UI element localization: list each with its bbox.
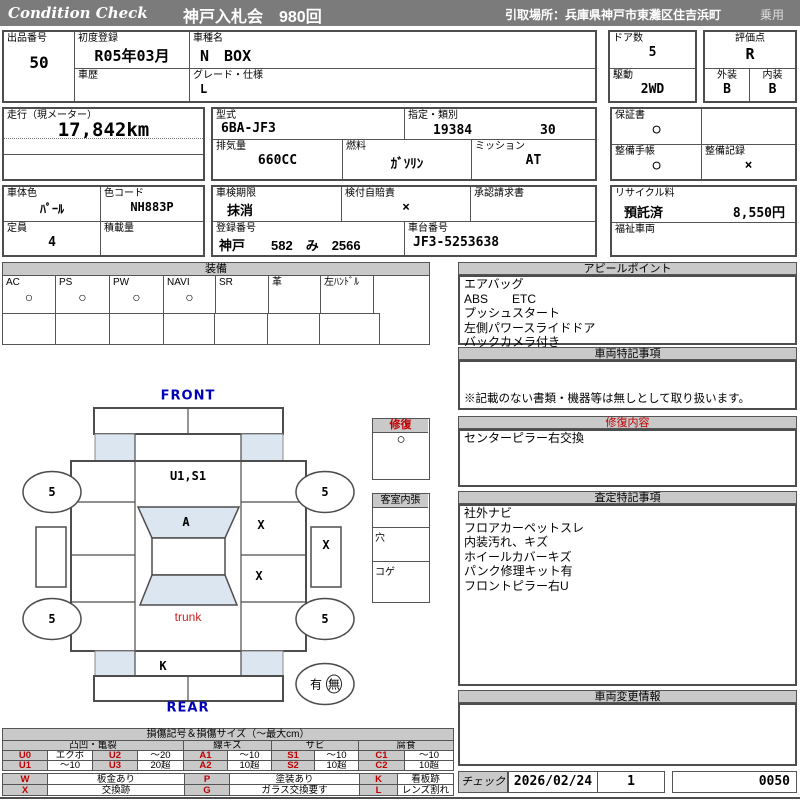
spare-none-label: 無 bbox=[326, 675, 342, 694]
displacement-value: 660CC bbox=[213, 153, 342, 168]
recycle-cell: リサイクル料 預託済 8,550円 bbox=[612, 187, 795, 223]
rear-cowl-left bbox=[95, 651, 135, 676]
fuel-cell: 燃料 ｶﾞｿﾘﾝ bbox=[343, 140, 472, 179]
legend-group-scratch: 線キズ bbox=[184, 741, 272, 751]
equipment-label: 左ﾊﾝﾄﾞﾙ bbox=[321, 276, 373, 289]
class-label: 指定・類別 bbox=[405, 109, 595, 122]
first-registration-value: R05年03月 bbox=[75, 45, 189, 66]
exterior-grade-value: B bbox=[705, 82, 749, 97]
equipment-label: NAVI bbox=[164, 276, 215, 289]
equipment-cell-lhd: 左ﾊﾝﾄﾞﾙ bbox=[321, 276, 374, 313]
vehicle-notes-body: ※記載のない書類・機器等は無しとして取り扱います。 bbox=[458, 360, 797, 410]
transmission-label: ミッション bbox=[472, 140, 595, 153]
damage-legend-table: 損傷記号＆損傷サイズ（〜最大cm） 凸凹・亀裂 線キズ サビ 腐食 U0 エクボ… bbox=[2, 728, 454, 771]
equipment-cell-navi: NAVI○ bbox=[164, 276, 216, 313]
drive-value: 2WD bbox=[610, 82, 695, 97]
legend-code: S1 bbox=[272, 751, 315, 761]
capacity-cell: 定員 4 bbox=[4, 222, 101, 255]
assessment-line: フロアカーペットスレ bbox=[460, 521, 795, 536]
vin-cell: 車台番号 JF3-5253638 bbox=[405, 222, 595, 255]
warranty-label: 保証書 bbox=[612, 109, 701, 122]
recycle-label: リサイクル料 bbox=[612, 187, 795, 200]
vehicle-info-table: 出品番号 50 初度登録 R05年03月 車歴 車種名 N BOX グレード・仕… bbox=[2, 30, 597, 103]
assessment-line: 社外ナビ bbox=[460, 506, 795, 521]
approval-label: 承認請求書 bbox=[471, 187, 595, 200]
equipment-cell-pw: PW○ bbox=[110, 276, 164, 313]
auction-condition-sheet: Condition Check 神戸入札会 980回 引取場所：兵庫県神戸市東灘… bbox=[0, 0, 800, 800]
pickup-location: 引取場所：兵庫県神戸市東灘区住吉浜町 bbox=[505, 6, 721, 23]
legend-size: 10超 bbox=[228, 761, 272, 771]
code-row-2: X 交換跡 G ガラス交換要す L レンズ割れ bbox=[3, 785, 453, 796]
rear-cowl-right bbox=[241, 651, 283, 676]
approval-cell: 承認請求書 bbox=[471, 187, 595, 222]
class-value-2: 30 bbox=[540, 123, 556, 138]
score-label: 評価点 bbox=[705, 32, 795, 45]
assessment-title: 査定特記事項 bbox=[458, 491, 797, 504]
legend-desc: 板金あり bbox=[48, 774, 185, 785]
lot-number-value: 50 bbox=[4, 53, 74, 72]
legend-desc: 塗装あり bbox=[230, 774, 360, 785]
recycle-status: 預託済 bbox=[624, 202, 663, 221]
equipment-cell-sr: SR bbox=[216, 276, 269, 313]
repair-content-line: センターピラー右交換 bbox=[460, 431, 795, 446]
wheel-size-fr: 5 bbox=[321, 485, 328, 499]
check-date: 2026/02/24 bbox=[509, 772, 598, 792]
legend-code: U2 bbox=[93, 751, 138, 761]
equipment-mark: ○ bbox=[3, 289, 55, 305]
interior-damage-title: 客室内張 bbox=[373, 494, 428, 508]
plate-label: 登録番号 bbox=[213, 222, 404, 235]
displacement-cell: 排気量 660CC bbox=[213, 140, 343, 179]
documents-box: 保証書 ○ 整備手帳 ○ 整備記録 × bbox=[610, 107, 797, 181]
color-capacity-box: 車体色 ﾊﾟｰﾙ 色コード NH883P 定員 4 積載量 bbox=[2, 185, 205, 257]
lot-number-label: 出品番号 bbox=[4, 32, 74, 45]
legend-code: X bbox=[3, 785, 48, 796]
legend-code: U3 bbox=[93, 761, 138, 771]
color-code-value: NH883P bbox=[101, 200, 203, 214]
bottom-rule bbox=[0, 797, 800, 799]
legend-group-row: 凸凹・亀裂 線キズ サビ 腐食 bbox=[3, 741, 453, 751]
capacity-label: 定員 bbox=[4, 222, 100, 235]
change-info-title: 車両変更情報 bbox=[458, 690, 797, 703]
score-cell: 評価点 R bbox=[705, 32, 795, 69]
mileage-box: 走行（現メーター） 17,842km bbox=[2, 107, 205, 181]
check-label-cell: チェック bbox=[458, 771, 508, 793]
brand-logo: Condition Check bbox=[8, 4, 148, 22]
left-side-panel bbox=[36, 527, 66, 587]
legend-code: W bbox=[3, 774, 48, 785]
equipment-cell-extra bbox=[374, 276, 428, 313]
grade-cell: グレード・仕様 L bbox=[190, 69, 595, 101]
transmission-cell: ミッション AT bbox=[472, 140, 595, 179]
spare-has-label: 有 bbox=[310, 676, 322, 693]
vehicle-notes-note: ※記載のない書類・機器等は無しとして取り扱います。 bbox=[464, 390, 750, 406]
x-mark-lower: X bbox=[255, 569, 262, 583]
warranty-value: ○ bbox=[612, 122, 701, 137]
rear-window bbox=[140, 575, 237, 605]
service-record-label: 整備記録 bbox=[702, 145, 795, 158]
transmission-value: AT bbox=[472, 153, 595, 168]
warranty-cell: 保証書 ○ bbox=[612, 109, 702, 145]
damage-code-table: W 板金あり P 塗装あり K 看板跡 X 交換跡 G ガラス交換要す L レン… bbox=[2, 773, 454, 796]
body-color-value: ﾊﾟｰﾙ bbox=[4, 200, 100, 217]
check-date-box: 2026/02/24 1 bbox=[508, 771, 665, 793]
equipment-mark: ○ bbox=[56, 289, 109, 305]
insurance-label: 検付自賠責 bbox=[342, 187, 470, 200]
recycle-fee: 8,550円 bbox=[733, 202, 785, 221]
service-book-value: ○ bbox=[612, 158, 701, 173]
legend-group-rust: サビ bbox=[272, 741, 359, 751]
legend-code: C2 bbox=[359, 761, 405, 771]
wheel-size-rr: 5 bbox=[321, 612, 328, 626]
equipment-label: 革 bbox=[269, 276, 320, 289]
legend-desc: ガラス交換要す bbox=[230, 785, 360, 796]
doors-drive-box: ドア数 5 駆動 2WD bbox=[608, 30, 697, 103]
equipment-cell-ps: PS○ bbox=[56, 276, 110, 313]
front-label: FRONT bbox=[161, 389, 216, 404]
displacement-label: 排気量 bbox=[213, 140, 342, 153]
repair-flag-box: 修復 ○ bbox=[372, 418, 430, 480]
roof bbox=[152, 538, 225, 575]
rear-label: REAR bbox=[167, 701, 210, 716]
inspection-cell: 車検期限 抹消 bbox=[213, 187, 342, 222]
appeal-body: エアバッグ ABS ETC プッシュスタート 左側パワースライドドア バックカメ… bbox=[458, 275, 797, 345]
repair-content-body: センターピラー右交換 bbox=[458, 429, 797, 487]
legend-title: 損傷記号＆損傷サイズ（〜最大cm） bbox=[3, 729, 453, 741]
assessment-line: ホイールカバーキズ bbox=[460, 550, 795, 565]
car-outline-drawing bbox=[20, 390, 370, 722]
body-color-label: 車体色 bbox=[4, 187, 100, 200]
legend-code: U0 bbox=[3, 751, 48, 761]
equipment-cell-ac: AC○ bbox=[3, 276, 56, 313]
front-cowl-right bbox=[241, 434, 283, 461]
welfare-label: 福祉車両 bbox=[612, 223, 795, 236]
appeal-line: プッシュスタート bbox=[460, 306, 795, 321]
legend-code: A1 bbox=[184, 751, 228, 761]
x-mark-upper: X bbox=[257, 518, 264, 532]
vin-label: 車台番号 bbox=[405, 222, 595, 235]
equipment-title: 装備 bbox=[3, 263, 429, 276]
equipment-label: SR bbox=[216, 276, 268, 289]
x-mark-side: X bbox=[322, 538, 329, 552]
first-registration-label: 初度登録 bbox=[75, 32, 189, 45]
legend-size: 20超 bbox=[138, 761, 184, 771]
doors-value: 5 bbox=[610, 45, 695, 60]
title-bar: Condition Check 神戸入札会 980回 引取場所：兵庫県神戸市東灘… bbox=[0, 0, 800, 26]
interior-grade-value: B bbox=[750, 82, 795, 97]
repair-flag-title: 修復 bbox=[373, 419, 428, 433]
interior-damage-box: 客室内張 ヤブレ 穴 コゲ bbox=[372, 493, 430, 603]
check-count: 1 bbox=[598, 772, 664, 792]
legend-desc: 看板跡 bbox=[398, 774, 453, 785]
plate-cell: 登録番号 神戸 582 み 2566 bbox=[213, 222, 405, 255]
mileage-cell: 走行（現メーター） 17,842km bbox=[4, 109, 203, 139]
drive-cell: 駆動 2WD bbox=[610, 69, 695, 101]
change-info-body bbox=[458, 703, 797, 766]
legend-desc: 交換跡 bbox=[48, 785, 185, 796]
equipment-label: AC bbox=[3, 276, 55, 289]
equipment-table: 装備 AC○ PS○ PW○ NAVI○ SR 革 左ﾊﾝﾄﾞﾙ bbox=[2, 262, 430, 345]
legend-size: 10超 bbox=[315, 761, 359, 771]
legend-code: K bbox=[360, 774, 398, 785]
legend-group-dents: 凸凹・亀裂 bbox=[3, 741, 184, 751]
appeal-line: エアバッグ bbox=[460, 277, 795, 292]
assessment-line: パンク修理キット有 bbox=[460, 564, 795, 579]
equipment-row-1: AC○ PS○ PW○ NAVI○ SR 革 左ﾊﾝﾄﾞﾙ bbox=[3, 276, 429, 313]
recycle-welfare-box: リサイクル料 預託済 8,550円 福祉車両 bbox=[610, 185, 797, 257]
history-cell: 車歴 bbox=[75, 69, 190, 101]
hood-mark: U1,S1 bbox=[170, 469, 206, 483]
load-cell: 積載量 bbox=[101, 222, 203, 255]
capacity-value: 4 bbox=[4, 235, 100, 250]
interior-grade-label: 内装 bbox=[750, 69, 795, 82]
legend-code: L bbox=[360, 785, 398, 796]
code-row-1: W 板金あり P 塗装あり K 看板跡 bbox=[3, 774, 453, 785]
warranty-empty-cell bbox=[702, 109, 795, 145]
history-label: 車歴 bbox=[75, 69, 189, 82]
plate-value: 神戸 582 み 2566 bbox=[213, 235, 404, 254]
legend-size-row-1: U0 エクボ U2 〜20 A1 〜10 S1 〜10 C1 〜10 bbox=[3, 751, 453, 761]
equipment-mark: ○ bbox=[164, 289, 215, 305]
check-number-box: 0050 bbox=[672, 771, 797, 793]
assessment-body: 社外ナビ フロアカーペットスレ 内装汚れ、キズ ホイールカバーキズ パンク修理キ… bbox=[458, 504, 797, 686]
rear-mark: K bbox=[159, 659, 166, 673]
color-code-label: 色コード bbox=[101, 187, 203, 200]
equipment-mark: ○ bbox=[110, 289, 163, 305]
lot-number-cell: 出品番号 50 bbox=[4, 32, 75, 101]
inspection-value: 抹消 bbox=[213, 200, 341, 219]
vehicle-notes-title: 車両特記事項 bbox=[458, 347, 797, 360]
vehicle-class: 乗用 bbox=[760, 6, 784, 23]
repair-flag-mark: ○ bbox=[373, 431, 429, 448]
equipment-label bbox=[374, 276, 428, 277]
service-record-value: × bbox=[702, 158, 795, 173]
equipment-label: PW bbox=[110, 276, 163, 289]
grade-value: L bbox=[190, 82, 595, 96]
legend-size: 〜10 bbox=[48, 761, 93, 771]
legend-code: S2 bbox=[272, 761, 315, 771]
damage-diagram: FRONT U1,S1 A X X X trunk K REAR 5 5 5 5… bbox=[20, 390, 370, 722]
repair-content-title: 修復内容 bbox=[458, 416, 797, 429]
fuel-value: ｶﾞｿﾘﾝ bbox=[343, 153, 471, 172]
model-name-label: 車種名 bbox=[190, 32, 595, 45]
assessment-line: フロントピラー右U bbox=[460, 579, 795, 594]
legend-desc: レンズ割れ bbox=[398, 785, 453, 796]
registration-box: 車検期限 抹消 検付自賠責 × 承認請求書 登録番号 神戸 582 み 2566… bbox=[211, 185, 597, 257]
legend-size: 〜10 bbox=[228, 751, 272, 761]
wheel-size-rl: 5 bbox=[48, 612, 55, 626]
insurance-cell: 検付自賠責 × bbox=[342, 187, 471, 222]
right-side-panel bbox=[311, 527, 341, 587]
drive-label: 駆動 bbox=[610, 69, 695, 82]
assessment-line: 内装汚れ、キズ bbox=[460, 535, 795, 550]
windshield-mark: A bbox=[182, 515, 189, 529]
equipment-label: PS bbox=[56, 276, 109, 289]
score-value: R bbox=[705, 45, 795, 63]
service-book-label: 整備手帳 bbox=[612, 145, 701, 158]
mileage-value: 17,842km bbox=[4, 122, 203, 139]
legend-size: 〜10 bbox=[405, 751, 453, 761]
interior-row-hole: 穴 bbox=[373, 528, 429, 562]
wheel-size-fl: 5 bbox=[48, 485, 55, 499]
equipment-row-2 bbox=[3, 313, 380, 345]
legend-size: 10超 bbox=[405, 761, 453, 771]
insurance-value: × bbox=[342, 200, 470, 215]
score-box: 評価点 R 外装 B 内装 B bbox=[703, 30, 797, 103]
fuel-label: 燃料 bbox=[343, 140, 471, 153]
legend-size: 〜20 bbox=[138, 751, 184, 761]
appeal-line: ABS ETC bbox=[460, 292, 795, 307]
legend-code: P bbox=[185, 774, 230, 785]
equipment-cell-leather: 革 bbox=[269, 276, 321, 313]
legend-code: A2 bbox=[184, 761, 228, 771]
class-value-1: 19384 bbox=[433, 123, 472, 138]
spec-box: 型式 6BA-JF3 指定・類別 19384 30 排気量 660CC 燃料 ｶ… bbox=[211, 107, 597, 181]
model-code-value: 6BA-JF3 bbox=[213, 122, 404, 136]
legend-size: 〜10 bbox=[315, 751, 359, 761]
trunk-label: trunk bbox=[175, 610, 202, 624]
grade-label: グレード・仕様 bbox=[190, 69, 595, 82]
model-code-cell: 型式 6BA-JF3 bbox=[213, 109, 405, 140]
front-cowl-left bbox=[95, 434, 135, 461]
service-book-cell: 整備手帳 ○ bbox=[612, 145, 702, 179]
welfare-cell: 福祉車両 bbox=[612, 223, 795, 255]
inspection-label: 車検期限 bbox=[213, 187, 341, 200]
class-cell: 指定・類別 19384 30 bbox=[405, 109, 595, 140]
load-label: 積載量 bbox=[101, 222, 203, 235]
body-color-cell: 車体色 ﾊﾟｰﾙ bbox=[4, 187, 101, 222]
exterior-grade-label: 外装 bbox=[705, 69, 749, 82]
first-registration-cell: 初度登録 R05年03月 bbox=[75, 32, 190, 69]
exterior-grade-cell: 外装 B bbox=[705, 69, 750, 101]
doors-cell: ドア数 5 bbox=[610, 32, 695, 69]
legend-code: U1 bbox=[3, 761, 48, 771]
model-name-cell: 車種名 N BOX bbox=[190, 32, 595, 69]
auction-title: 神戸入札会 980回 bbox=[183, 3, 322, 27]
mileage-sub-cell bbox=[4, 139, 203, 155]
legend-group-corrosion: 腐食 bbox=[359, 741, 453, 751]
color-code-cell: 色コード NH883P bbox=[101, 187, 203, 222]
legend-size: エクボ bbox=[48, 751, 93, 761]
service-record-cell: 整備記録 × bbox=[702, 145, 795, 179]
appeal-title: アピールポイント bbox=[458, 262, 797, 275]
interior-grade-cell: 内装 B bbox=[750, 69, 795, 101]
legend-code: C1 bbox=[359, 751, 405, 761]
appeal-line: 左側パワースライドドア bbox=[460, 321, 795, 336]
doors-label: ドア数 bbox=[610, 32, 695, 45]
legend-code: G bbox=[185, 785, 230, 796]
vin-value: JF3-5253638 bbox=[405, 235, 595, 250]
interior-row-burn: コゲ bbox=[373, 562, 429, 592]
model-name-value: N BOX bbox=[190, 45, 595, 66]
legend-size-row-2: U1 〜10 U3 20超 A2 10超 S2 10超 C2 10超 bbox=[3, 761, 453, 771]
